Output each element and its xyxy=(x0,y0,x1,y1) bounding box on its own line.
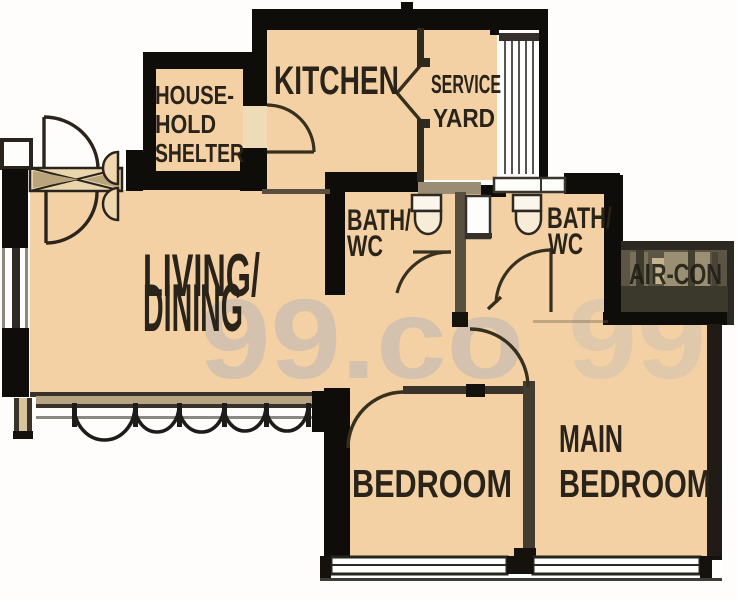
svg-text:MAIN: MAIN xyxy=(559,418,623,461)
svg-text:SHELTER: SHELTER xyxy=(155,138,244,168)
svg-text:BEDROOM: BEDROOM xyxy=(559,463,711,506)
svg-text:BEDROOM: BEDROOM xyxy=(352,463,512,506)
svg-text:SERVICE: SERVICE xyxy=(431,69,501,99)
svg-text:HOUSE-: HOUSE- xyxy=(155,80,234,110)
svg-text:WC: WC xyxy=(548,228,583,261)
svg-text:KITCHEN: KITCHEN xyxy=(274,59,399,103)
svg-text:AIR-CON: AIR-CON xyxy=(629,259,722,291)
svg-text:DINING: DINING xyxy=(143,270,243,346)
svg-text:HOLD: HOLD xyxy=(155,109,216,139)
svg-text:YARD: YARD xyxy=(433,103,495,133)
svg-text:WC: WC xyxy=(347,230,383,263)
